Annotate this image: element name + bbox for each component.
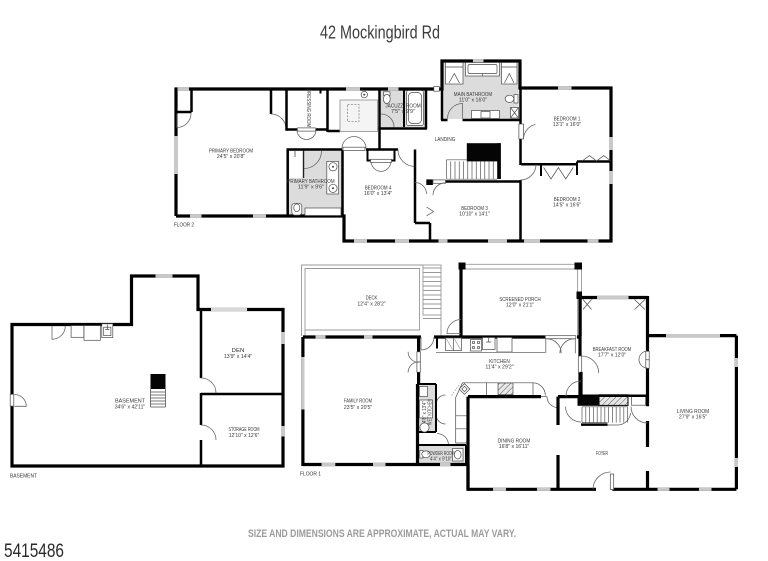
svg-text:FAMILY ROOM: FAMILY ROOM: [344, 399, 372, 405]
svg-text:4'8" x 13'4": 4'8" x 13'4": [422, 401, 428, 423]
svg-text:12'10" x 12'6": 12'10" x 12'6": [229, 433, 260, 439]
svg-text:5415486: 5415486: [4, 540, 64, 561]
svg-text:11'0" x 16'0": 11'0" x 16'0": [459, 98, 487, 104]
svg-text:FLOOR 1: FLOOR 1: [300, 472, 321, 478]
svg-text:4'4" x 9'10": 4'4" x 9'10": [430, 457, 452, 463]
svg-text:23'5" x 20'5": 23'5" x 20'5": [344, 405, 372, 411]
svg-text:24'5" x 20'8": 24'5" x 20'8": [217, 154, 245, 160]
svg-text:FLOOR 2: FLOOR 2: [174, 223, 194, 229]
svg-text:27'9" x 16'5": 27'9" x 16'5": [679, 415, 707, 421]
svg-text:DEN: DEN: [232, 348, 245, 354]
svg-text:17'7" x 12'0": 17'7" x 12'0": [598, 353, 626, 359]
svg-text:16'0" x 13'4": 16'0" x 13'4": [364, 191, 392, 197]
svg-text:10'10" x 14'1": 10'10" x 14'1": [459, 212, 490, 218]
svg-text:LANDING: LANDING: [435, 137, 456, 143]
svg-text:SIZE AND DIMENSIONS ARE APPROX: SIZE AND DIMENSIONS ARE APPROXIMATE, ACT…: [248, 528, 516, 540]
svg-text:11'9" x 9'6": 11'9" x 9'6": [298, 184, 324, 190]
svg-text:16'8" x 16'11": 16'8" x 16'11": [499, 444, 530, 450]
svg-text:12'0" x 21'1": 12'0" x 21'1": [506, 303, 534, 309]
svg-text:42 Mockingbird Rd: 42 Mockingbird Rd: [320, 22, 440, 43]
svg-text:DRESSING ROOM: DRESSING ROOM: [305, 89, 311, 128]
svg-text:WET KITCHEN: WET KITCHEN: [428, 399, 434, 425]
svg-text:34'6" x 42'11": 34'6" x 42'11": [115, 405, 146, 411]
svg-text:14'5" x 16'6": 14'5" x 16'6": [553, 203, 581, 209]
svg-text:13'9" x 14'4": 13'9" x 14'4": [224, 354, 252, 360]
svg-text:12'4" x 28'2": 12'4" x 28'2": [357, 302, 385, 308]
svg-text:FOYER: FOYER: [596, 451, 608, 457]
svg-text:BASEMENT: BASEMENT: [10, 474, 37, 480]
svg-text:13'1" x 16'0": 13'1" x 16'0": [553, 122, 581, 128]
svg-text:7'5" x 9'9": 7'5" x 9'9": [391, 109, 415, 115]
svg-text:11'4" x 29'2": 11'4" x 29'2": [485, 365, 513, 371]
